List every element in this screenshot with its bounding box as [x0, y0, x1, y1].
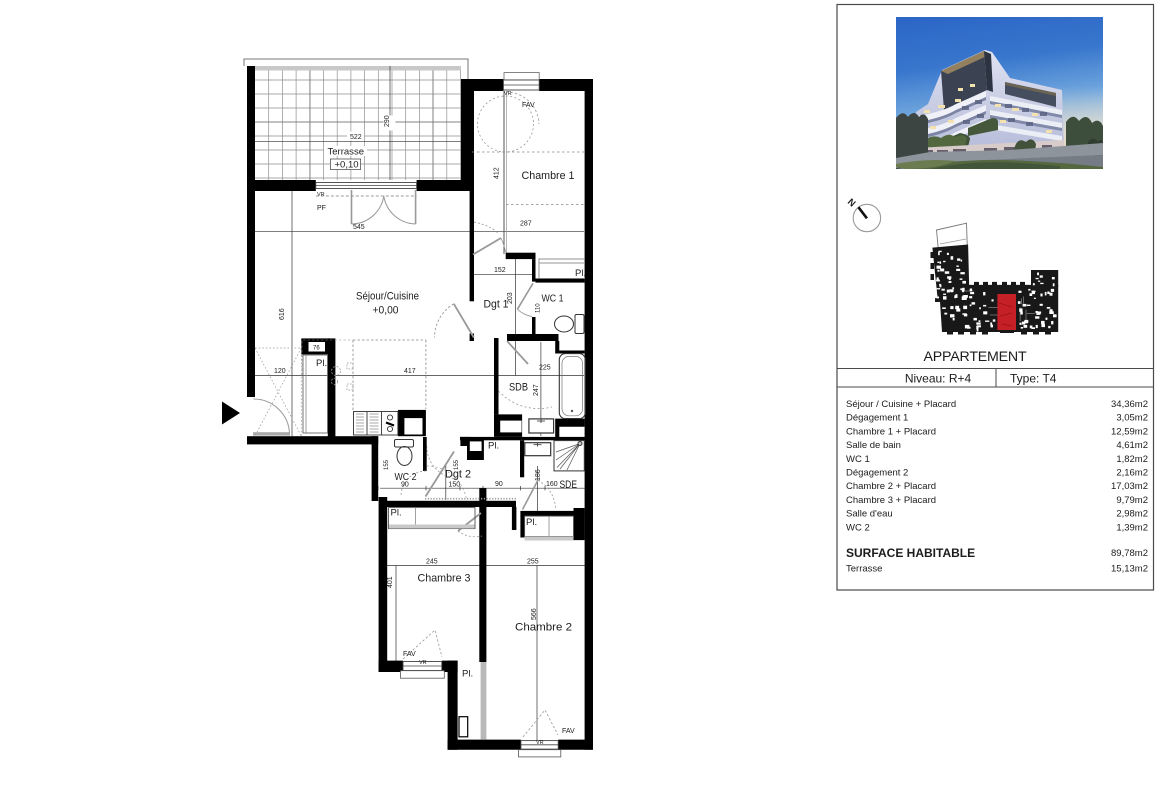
- svg-text:287: 287: [520, 221, 532, 228]
- svg-text:290: 290: [384, 115, 391, 127]
- svg-text:PF: PF: [317, 205, 326, 212]
- svg-text:Chambre 2 + Placard: Chambre 2 + Placard: [846, 481, 936, 492]
- svg-text:Terrasse: Terrasse: [846, 564, 882, 575]
- svg-text:3,05m2: 3,05m2: [1116, 413, 1148, 424]
- svg-text:186: 186: [535, 469, 542, 481]
- svg-text:417: 417: [404, 368, 416, 375]
- svg-text:545: 545: [353, 224, 365, 231]
- svg-text:401: 401: [387, 576, 394, 588]
- svg-text:VR: VR: [536, 740, 544, 746]
- svg-text:Niveau: R+4: Niveau: R+4: [905, 372, 972, 386]
- svg-text:150: 150: [449, 482, 461, 489]
- svg-text:Pl.: Pl.: [526, 517, 537, 528]
- svg-text:Terrasse: Terrasse: [328, 147, 365, 158]
- svg-text:Chambre 3: Chambre 3: [418, 573, 471, 585]
- svg-text:160: 160: [546, 481, 558, 488]
- svg-text:FAV: FAV: [522, 102, 535, 109]
- svg-text:1,39m2: 1,39m2: [1116, 522, 1148, 533]
- svg-text:Salle d'eau: Salle d'eau: [846, 509, 893, 520]
- svg-text:566: 566: [531, 608, 538, 620]
- svg-text:VR: VR: [504, 91, 512, 97]
- svg-text:9,79m2: 9,79m2: [1116, 495, 1148, 506]
- svg-text:255: 255: [527, 559, 539, 566]
- svg-text:15,13m2: 15,13m2: [1111, 564, 1148, 575]
- svg-text:FAV: FAV: [562, 728, 575, 735]
- svg-text:225: 225: [539, 365, 551, 372]
- svg-text:90: 90: [401, 482, 409, 489]
- svg-text:SURFACE HABITABLE: SURFACE HABITABLE: [846, 546, 975, 560]
- svg-text:247: 247: [533, 384, 540, 396]
- svg-text:+0,00: +0,00: [373, 305, 399, 317]
- svg-text:Dégagement 2: Dégagement 2: [846, 468, 908, 479]
- svg-text:Chambre 1 + Placard: Chambre 1 + Placard: [846, 426, 936, 437]
- svg-text:Chambre 2: Chambre 2: [515, 622, 572, 634]
- svg-text:522: 522: [350, 134, 362, 141]
- svg-text:12,59m2: 12,59m2: [1111, 426, 1148, 437]
- svg-text:155: 155: [384, 459, 390, 470]
- svg-text:Séjour/Cuisine: Séjour/Cuisine: [356, 291, 419, 303]
- svg-text:Pl.: Pl.: [462, 669, 473, 680]
- svg-text:Pl.: Pl.: [316, 358, 327, 369]
- svg-text:Chambre 1: Chambre 1: [522, 170, 575, 182]
- svg-text:90: 90: [495, 481, 503, 488]
- svg-text:89,78m2: 89,78m2: [1111, 548, 1148, 559]
- svg-text:Dégagement 1: Dégagement 1: [846, 413, 908, 424]
- svg-text:Salle de bain: Salle de bain: [846, 440, 901, 451]
- svg-text:Pl.: Pl.: [391, 508, 402, 519]
- svg-text:2,98m2: 2,98m2: [1116, 509, 1148, 520]
- svg-text:Dgt 1: Dgt 1: [484, 299, 509, 311]
- svg-text:Pl.: Pl.: [488, 441, 499, 452]
- svg-text:WC 1: WC 1: [846, 454, 870, 465]
- svg-text:155: 155: [454, 459, 460, 470]
- svg-text:Pl.: Pl.: [575, 268, 586, 279]
- svg-text:76: 76: [313, 346, 320, 352]
- svg-text:245: 245: [426, 559, 438, 566]
- svg-text:WC 1: WC 1: [542, 293, 564, 305]
- svg-text:152: 152: [494, 267, 506, 274]
- svg-text:+0,10: +0,10: [335, 160, 359, 171]
- svg-text:4,61m2: 4,61m2: [1116, 440, 1148, 451]
- svg-text:34,36m2: 34,36m2: [1111, 399, 1148, 410]
- svg-text:17,03m2: 17,03m2: [1111, 481, 1148, 492]
- svg-text:203: 203: [507, 292, 514, 304]
- svg-text:APPARTEMENT: APPARTEMENT: [924, 349, 1027, 365]
- svg-text:SDB: SDB: [509, 382, 528, 394]
- svg-text:412: 412: [494, 167, 501, 179]
- svg-text:Chambre 3 + Placard: Chambre 3 + Placard: [846, 495, 936, 506]
- svg-text:2,16m2: 2,16m2: [1116, 468, 1148, 479]
- svg-text:WC 2: WC 2: [846, 522, 870, 533]
- svg-text:1,82m2: 1,82m2: [1116, 454, 1148, 465]
- svg-text:110: 110: [536, 303, 542, 313]
- svg-text:SDE: SDE: [560, 479, 578, 491]
- svg-text:VR: VR: [317, 192, 325, 198]
- svg-text:616: 616: [279, 308, 286, 320]
- svg-text:FAV: FAV: [403, 651, 416, 658]
- svg-text:Type: T4: Type: T4: [1010, 372, 1057, 386]
- svg-text:VR: VR: [419, 660, 427, 666]
- svg-text:120: 120: [274, 368, 286, 375]
- svg-text:Séjour / Cuisine + Placard: Séjour / Cuisine + Placard: [846, 399, 956, 410]
